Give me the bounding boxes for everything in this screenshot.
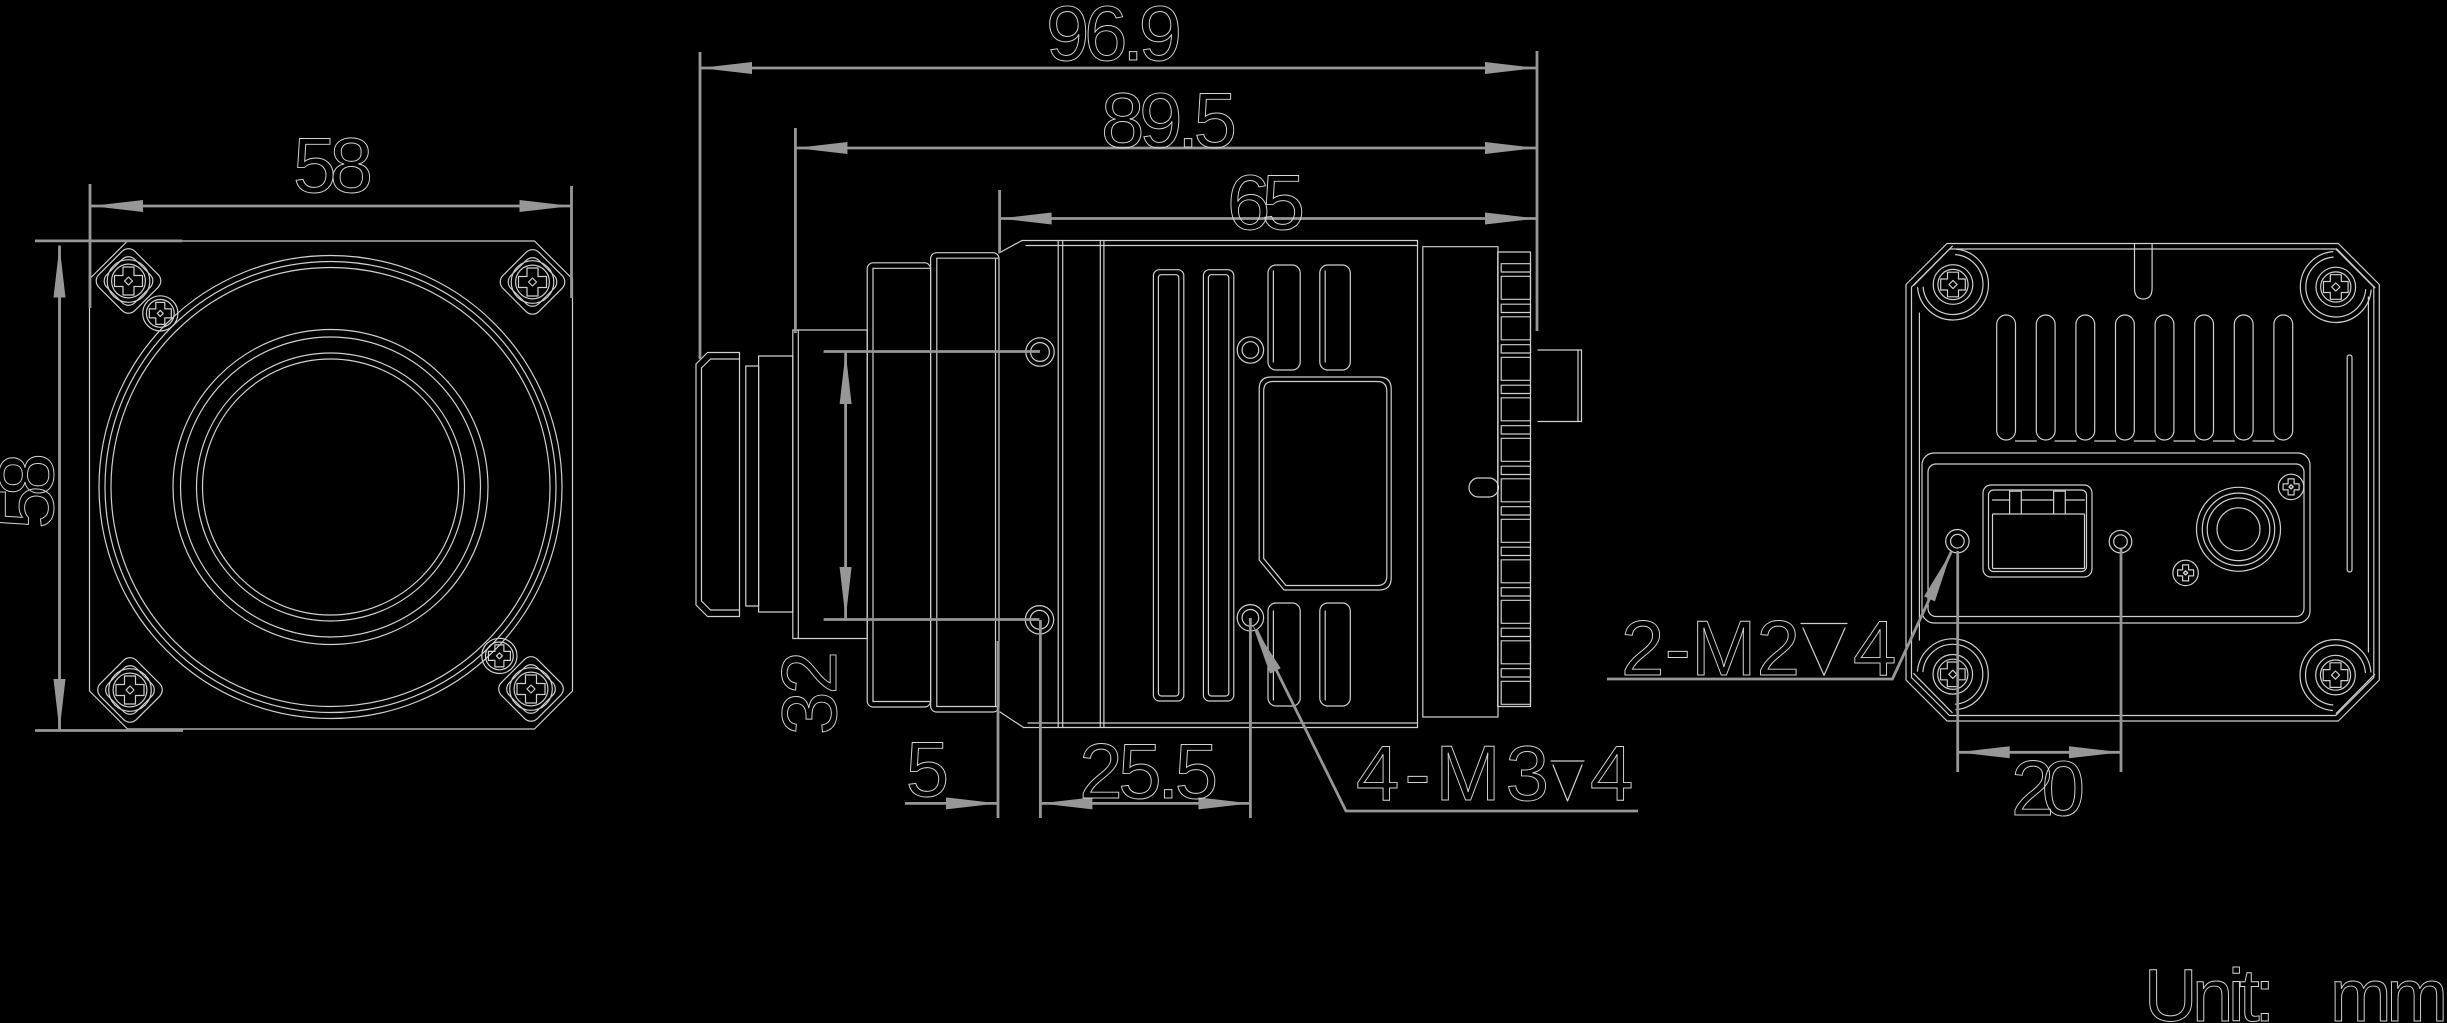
svg-text:58: 58 [0,453,70,529]
svg-text:58: 58 [293,121,373,209]
svg-text:20: 20 [2011,744,2085,832]
svg-text:2-M2: 2-M2 [1621,604,1800,692]
svg-text:32: 32 [765,651,853,735]
svg-text:65: 65 [1227,158,1305,246]
svg-text:mm: mm [2330,954,2447,1023]
svg-text:25.5: 25.5 [1079,727,1218,815]
svg-text:4: 4 [1853,604,1896,692]
svg-text:4-M3: 4-M3 [1356,729,1549,817]
svg-text:89.5: 89.5 [1101,76,1237,164]
svg-text:5: 5 [906,725,949,813]
svg-text:96.9: 96.9 [1046,0,1182,77]
svg-text:4: 4 [1590,729,1633,817]
svg-text:Unit:: Unit: [2144,954,2275,1023]
